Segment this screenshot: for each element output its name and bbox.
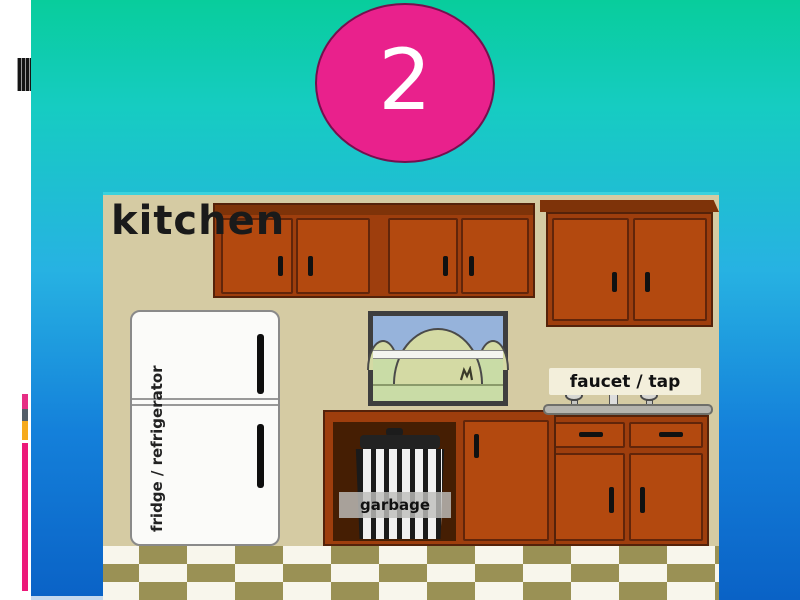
accent-bar-slate — [22, 409, 28, 421]
accent-bar-pink-long — [22, 443, 28, 591]
cabinet-door — [461, 218, 529, 294]
faucet-label: faucet / tap — [549, 368, 701, 395]
cabinet-door — [633, 218, 707, 321]
garbage-lid — [360, 435, 440, 449]
drawer — [551, 422, 625, 448]
window — [368, 311, 508, 406]
sink-cabinet — [545, 415, 709, 546]
fridge-label: fridge / refrigerator — [148, 337, 166, 532]
kitchen-illustration: kitchen — [103, 192, 719, 600]
cabinet-handle — [640, 487, 645, 513]
cabinet-door — [296, 218, 370, 294]
cabinet-handle — [443, 256, 448, 276]
garbage-cabinet: garbage — [323, 410, 556, 546]
cabinet-handle — [474, 434, 479, 458]
drawer — [629, 422, 703, 448]
cabinet-door — [388, 218, 458, 294]
slide-number-badge: 2 — [315, 3, 495, 163]
accent-bar-orange — [22, 421, 28, 440]
image-top-border — [103, 192, 719, 195]
cabinet-handle — [612, 272, 617, 292]
fridge-handle-bottom — [257, 424, 264, 488]
cabinet-door — [629, 453, 703, 541]
garbage-label: garbage — [339, 492, 451, 518]
sink-rim — [543, 404, 713, 415]
cabinet-crown — [540, 200, 719, 212]
window-figure-icon — [459, 366, 475, 382]
cabinet-handle — [645, 272, 650, 292]
drawer-handle — [659, 432, 683, 437]
cabinet-handle — [469, 256, 474, 276]
window-sash — [373, 350, 503, 359]
cabinet-door — [463, 420, 549, 541]
upper-cabinets-right — [546, 212, 713, 327]
fridge-handle-top — [257, 334, 264, 394]
bottom-edge-strip — [31, 596, 103, 600]
slide-canvas: 2 kitchen — [0, 0, 800, 600]
tiled-floor — [103, 546, 719, 600]
cabinet-handle — [278, 256, 283, 276]
cabinet-door — [551, 453, 625, 541]
cabinet-handle — [609, 487, 614, 513]
fridge: fridge / refrigerator — [130, 310, 280, 546]
drawer-handle — [579, 432, 603, 437]
kitchen-title: kitchen — [111, 198, 285, 244]
slide-number: 2 — [378, 38, 431, 122]
cabinet-door — [552, 218, 629, 321]
garbage-alcove: garbage — [333, 422, 456, 541]
accent-bar-pink-small — [22, 394, 28, 409]
window-horizon-line — [373, 384, 503, 386]
striped-marker-icon — [17, 58, 31, 91]
cabinet-handle — [308, 256, 313, 276]
